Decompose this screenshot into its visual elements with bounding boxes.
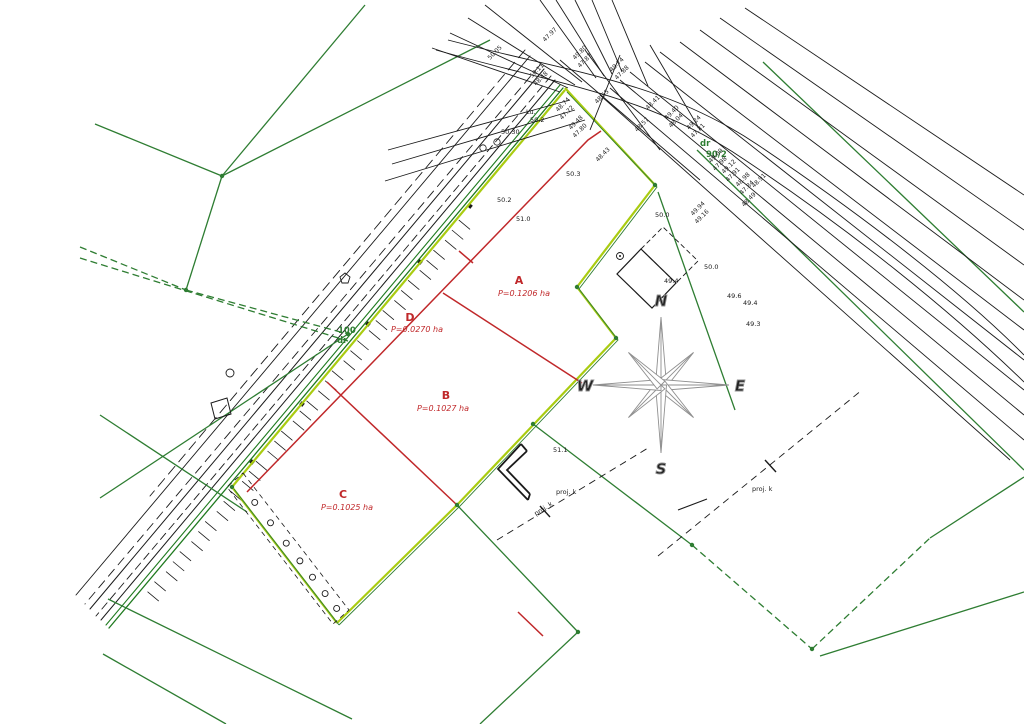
proj-k-label: proj. k	[752, 485, 773, 493]
track-elevation: 48.43	[594, 146, 611, 163]
road-labels: dr 90/2 100 dr	[337, 139, 727, 346]
proj-k-label: proj. k	[556, 488, 577, 496]
spot-height: 49.4	[743, 299, 757, 307]
plot-area-c: P=0.1025 ha	[321, 503, 373, 512]
road-label-100-dr: dr	[337, 336, 348, 346]
railway-track-lines	[385, 0, 1024, 460]
plot-area-b: P=0.1027 ha	[417, 404, 469, 413]
corridor-lines	[76, 50, 563, 628]
plot-area-a: P=0.1206 ha	[498, 289, 550, 298]
plot-label-c: C	[339, 488, 347, 501]
compass-label-w: W	[577, 377, 595, 395]
green-parcel-boundaries	[80, 5, 1024, 724]
chartreuse-boundary	[232, 88, 657, 625]
spot-height: Lu.	[526, 108, 536, 116]
spot-height: 49.3	[746, 320, 760, 328]
compass-label-e: E	[735, 377, 746, 395]
spot-height: 50.30	[501, 128, 520, 136]
cadastral-survey-map: N E S W A P=0.1206 ha B P=0.1027 ha C P=…	[0, 0, 1024, 724]
plot-labels: A P=0.1206 ha B P=0.1027 ha C P=0.1025 h…	[321, 274, 550, 512]
spot-height: 50.2	[530, 116, 544, 124]
spot-height: 51.0	[516, 215, 530, 223]
spot-height: 51.1	[553, 446, 567, 454]
spot-height: 49.6	[727, 292, 741, 300]
spot-height: 50.2	[497, 196, 511, 204]
compass-label-n: N	[655, 292, 668, 310]
bracket-structure	[498, 444, 530, 500]
spot-height: 50.0	[655, 211, 669, 219]
compass-label-s: S	[656, 460, 667, 478]
plot-area-d: P=0.0270 ha	[391, 325, 443, 334]
spot-height: 49.4	[664, 277, 678, 285]
track-elevation: 48.41	[644, 94, 661, 111]
survey-symbol-pentagon	[340, 273, 350, 283]
misc-survey-marks	[211, 139, 862, 624]
projected-line-labels: proj. k proj. k proj. k	[533, 485, 773, 518]
road-label-dr: dr	[700, 139, 711, 149]
plot-label-a: A	[515, 274, 524, 287]
track-elevation: 47.97	[541, 26, 558, 43]
spot-height: 50.3	[566, 170, 580, 178]
plot-label-d: D	[405, 311, 414, 324]
road-label-100: 100	[338, 326, 356, 336]
spot-height: 50.0	[704, 263, 718, 271]
proj-k-label: proj. k	[533, 500, 555, 518]
survey-symbol-circle	[226, 369, 234, 377]
plot-label-b: B	[442, 389, 450, 402]
